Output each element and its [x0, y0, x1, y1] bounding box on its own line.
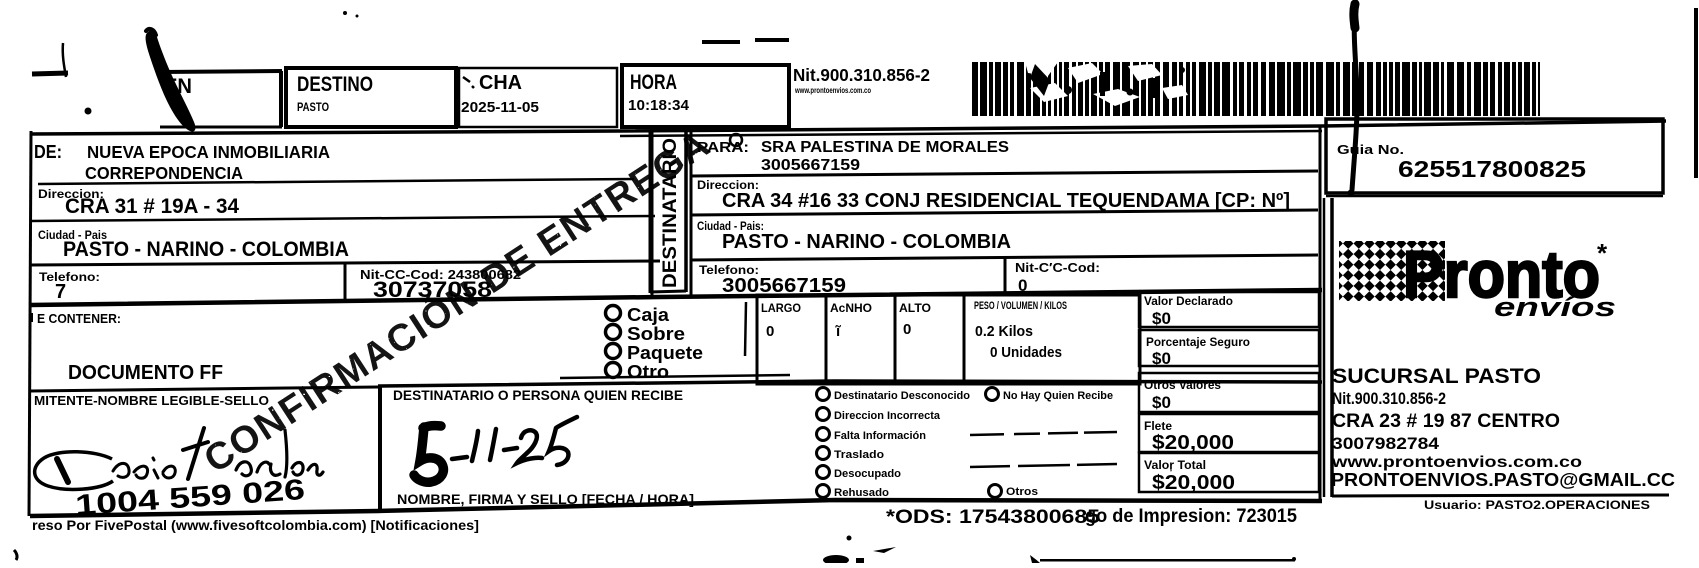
- svg-text:LARGO: LARGO: [761, 301, 801, 315]
- svg-text:Nit-C′C-Cod:: Nit-C′C-Cod:: [1015, 261, 1100, 275]
- svg-text:3005667159: 3005667159: [761, 157, 860, 174]
- svg-text:Porcentaje Seguro: Porcentaje Seguro: [1146, 335, 1250, 349]
- svg-text:Flete: Flete: [1144, 419, 1172, 433]
- svg-text:NUEVA EPOCA INMOBILIARIA: NUEVA EPOCA INMOBILIARIA: [87, 142, 330, 162]
- svg-text:$20,000: $20,000: [1152, 472, 1235, 494]
- svg-text:HORA: HORA: [630, 71, 677, 94]
- svg-text:ALTO: ALTO: [899, 301, 931, 315]
- svg-text:AᴄNHO: AᴄNHO: [830, 301, 872, 315]
- svg-text:Falta Información: Falta Información: [834, 430, 926, 442]
- svg-text:No Hay Quien Recibe: No Hay Quien Recibe: [1003, 390, 1113, 402]
- svg-text:625517800825: 625517800825: [1398, 156, 1586, 182]
- svg-text:CRA 23 # 19 87 CENTRO: CRA 23 # 19 87 CENTRO: [1332, 411, 1560, 432]
- svg-text:Nit.900.310.856-2: Nit.900.310.856-2: [1332, 389, 1446, 408]
- svg-text:envíos: envíos: [1494, 292, 1616, 322]
- svg-text:DESTINATARIO O PERSONA QUIEN R: DESTINATARIO O PERSONA QUIEN RECIBE: [393, 387, 683, 403]
- svg-text:go de Impresion: 723015: go de Impresion: 723015: [1085, 506, 1297, 527]
- svg-text:3007982784: 3007982784: [1332, 434, 1440, 453]
- svg-text:PASTO - NARINO - COLOMBIA: PASTO - NARINO - COLOMBIA: [63, 238, 349, 261]
- svg-text:Usuario: PASTO2.OPERACIONES: Usuario: PASTO2.OPERACIONES: [1424, 498, 1650, 512]
- svg-text:CRA 34 #16 33 CONJ RESIDENCIAL: CRA 34 #16 33 CONJ RESIDENCIAL TEQUENDAM…: [722, 190, 1290, 212]
- svg-text:DESTINO: DESTINO: [297, 73, 373, 96]
- svg-text:$0: $0: [1152, 309, 1171, 328]
- svg-text:Otros: Otros: [1006, 486, 1038, 498]
- svg-text:DOCUMENTO FF: DOCUMENTO FF: [68, 362, 223, 384]
- svg-text:Guia No.: Guia No.: [1337, 142, 1404, 157]
- svg-text:CORREPONDENCIA: CORREPONDENCIA: [85, 163, 243, 183]
- svg-text:Nit.900.310.856-2: Nit.900.310.856-2: [793, 65, 930, 85]
- svg-text:Valoŗ Total: Valoŗ Total: [1144, 458, 1206, 472]
- svg-text:Rehusado: Rehusado: [834, 487, 889, 499]
- svg-text:Destinatario Desconocido: Destinatario Desconocido: [834, 390, 970, 402]
- svg-text:Caja: Caja: [627, 305, 670, 325]
- svg-text:Otro: Otro: [627, 362, 669, 382]
- svg-text:ĩ: ĩ: [835, 323, 841, 340]
- svg-text:0 Unidades: 0 Unidades: [990, 345, 1062, 361]
- svg-text:2025-11-05: 2025-11-05: [461, 99, 539, 116]
- svg-text:0: 0: [766, 323, 774, 340]
- svg-text:Sobre: Sobre: [627, 324, 685, 344]
- svg-text:SUCURSAL PASTO: SUCURSAL PASTO: [1332, 365, 1541, 388]
- svg-text:*: *: [1597, 238, 1608, 268]
- svg-text:E CONTENER:: E CONTENER:: [37, 311, 121, 326]
- svg-text:SRA PALESTINA DE MORALES: SRA PALESTINA DE MORALES: [761, 139, 1009, 156]
- svg-text:DE:: DE:: [34, 142, 62, 162]
- svg-text:7: 7: [55, 281, 66, 303]
- svg-text:CHA: CHA: [479, 72, 522, 94]
- svg-text:PESO / VOLUMEN / KILOS: PESO / VOLUMEN / KILOS: [974, 300, 1067, 312]
- svg-text:MITENTE-NOMBRE LEGIBLE-SELLO: MITENTE-NOMBRE LEGIBLE-SELLO: [34, 393, 269, 408]
- svg-text:*ODS: 17543800685: *ODS: 17543800685: [886, 507, 1101, 528]
- svg-text:0: 0: [903, 321, 911, 338]
- svg-text:Telefono:: Telefono:: [39, 270, 100, 284]
- svg-text:0: 0: [1018, 276, 1027, 295]
- svg-text:$0: $0: [1152, 393, 1171, 412]
- svg-text:PASTO - NARINO - COLOMBIA: PASTO - NARINO - COLOMBIA: [722, 231, 1011, 253]
- svg-text:Paquete: Paquete: [627, 343, 703, 363]
- svg-text:0.2 Kilos: 0.2 Kilos: [975, 324, 1033, 340]
- svg-text:PASTO: PASTO: [297, 100, 329, 114]
- svg-text:$0: $0: [1152, 349, 1171, 368]
- svg-text:Direccion Incorrecta: Direccion Incorrecta: [834, 410, 941, 422]
- svg-text:10:18:34: 10:18:34: [628, 97, 690, 114]
- svg-text:www.prontoenvios.com.co: www.prontoenvios.com.co: [1331, 454, 1583, 471]
- svg-text:Valor Declarado: Valor Declarado: [1144, 294, 1233, 308]
- svg-text:PRONTOENVIOS.PASTO@GMAIL.CC: PRONTOENVIOS.PASTO@GMAIL.CC: [1331, 470, 1675, 490]
- svg-text:CRA 31 # 19A - 34: CRA 31 # 19A - 34: [65, 195, 239, 218]
- svg-text:Desocupado: Desocupado: [834, 468, 901, 480]
- svg-text:Traslado: Traslado: [834, 449, 884, 461]
- svg-text:www.prontoenvios.com.co: www.prontoenvios.com.co: [794, 85, 871, 95]
- svg-text:$20,000: $20,000: [1152, 432, 1234, 454]
